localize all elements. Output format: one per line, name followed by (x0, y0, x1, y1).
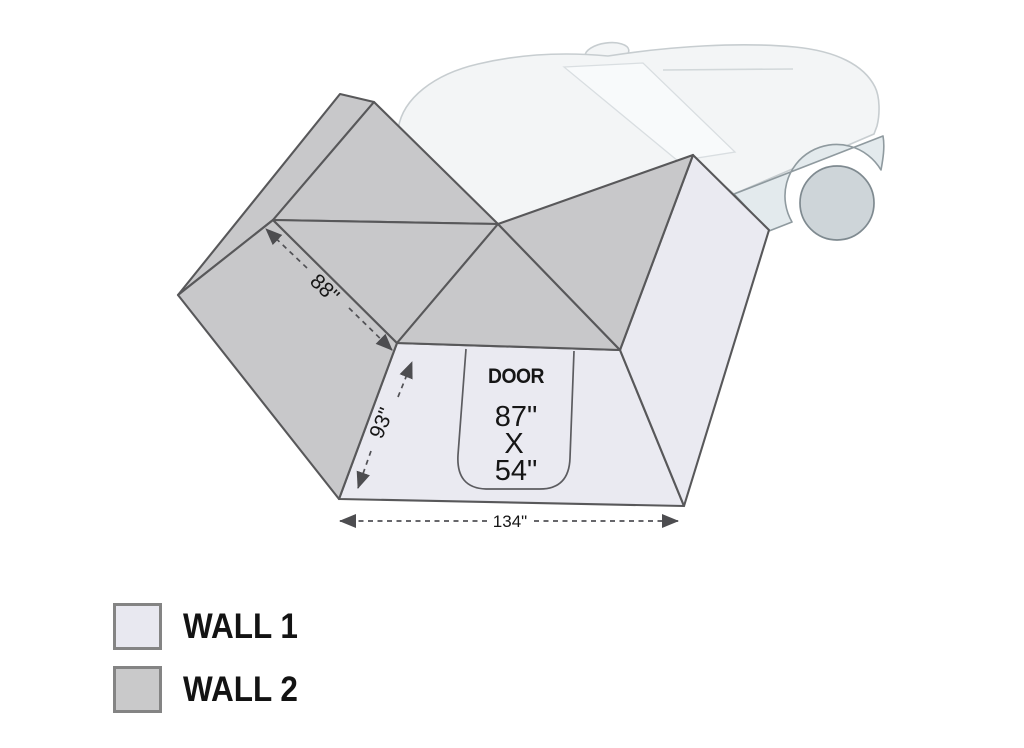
car-wheel (800, 166, 874, 240)
legend-item-wall2: WALL 2 (113, 666, 311, 713)
dimension-base-width: 134" (340, 512, 678, 531)
legend: WALL 1 WALL 2 (113, 603, 311, 729)
door-label: DOOR (488, 365, 545, 388)
car-body-crease-line (663, 69, 793, 70)
legend-swatch-wall2 (113, 666, 162, 713)
legend-label-wall1: WALL 1 (183, 604, 298, 650)
legend-item-wall1: WALL 1 (113, 603, 311, 650)
legend-swatch-wall1 (113, 603, 162, 650)
dimension-base-width-label: 134" (493, 512, 527, 531)
legend-label-wall2: WALL 2 (183, 667, 298, 713)
door-width-value: 54" (495, 455, 538, 487)
door-callout: DOOR 87" X 54" (488, 365, 545, 487)
